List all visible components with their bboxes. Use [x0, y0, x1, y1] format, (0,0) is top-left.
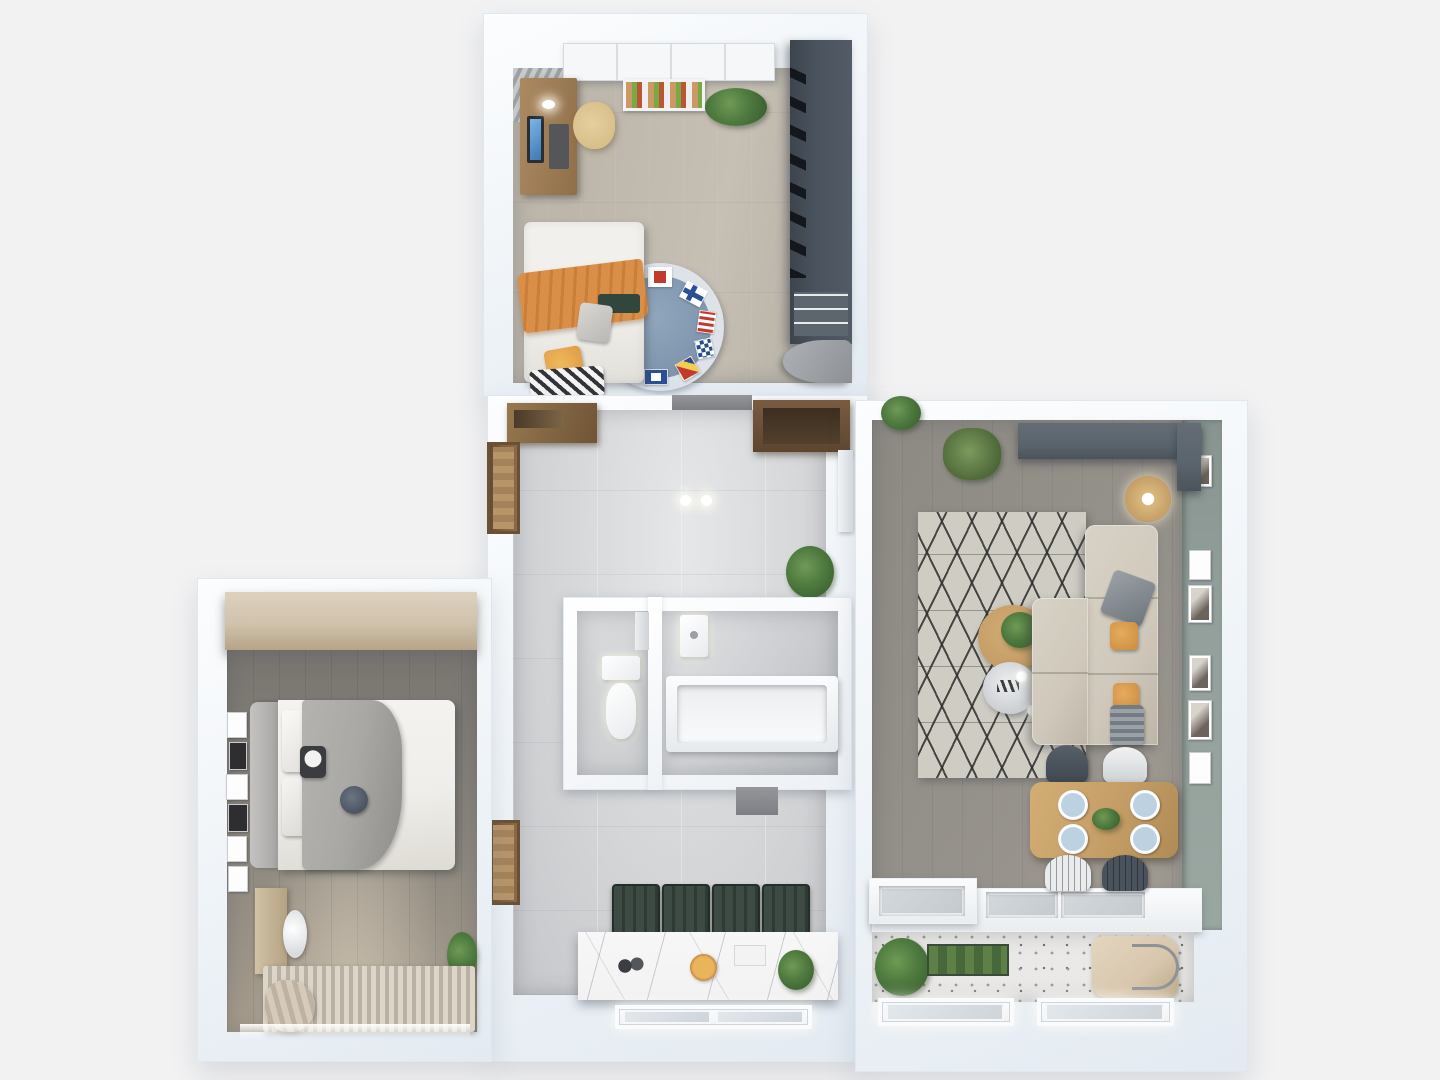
bedroom-chair	[283, 910, 307, 958]
flag-red-square	[648, 267, 672, 287]
wall-dispenser	[635, 612, 649, 650]
kids-single-bed	[524, 222, 644, 383]
bar-stool-2	[662, 884, 710, 938]
bathroom-sink	[680, 615, 708, 657]
hallway-kitchen-block	[487, 395, 868, 1062]
plate-2	[1130, 790, 1160, 820]
gray-pillow	[576, 302, 614, 343]
double-bed	[278, 700, 455, 870]
dining-table	[1030, 782, 1178, 858]
bar-stool-4	[762, 884, 810, 938]
bathtub-basin	[677, 685, 827, 743]
desk-lamp	[542, 100, 555, 109]
plate-4	[1130, 824, 1160, 854]
master-bedroom	[197, 578, 492, 1062]
flag-stripes	[697, 310, 717, 334]
planter-box	[927, 944, 1009, 976]
plate-3	[1058, 824, 1088, 854]
bedroom-window-light	[240, 1024, 470, 1040]
table-plant	[1092, 808, 1120, 830]
gray-throw-blanket	[302, 700, 402, 870]
side-table-items	[997, 680, 1019, 692]
desk	[520, 78, 577, 195]
rattan-floor-lamp	[1125, 476, 1171, 522]
monitor-screen	[530, 119, 541, 160]
ceiling-light-1	[680, 495, 691, 506]
bathroom-block	[563, 597, 852, 790]
bathtub	[666, 676, 838, 752]
ceiling-light-2	[701, 495, 712, 506]
flag-blue	[644, 369, 668, 385]
living-dining-block	[855, 400, 1248, 1072]
kids-room-door-threshold	[672, 395, 752, 410]
book-shelf	[623, 79, 705, 111]
entry-door	[487, 442, 520, 534]
hall-brown-wardrobe	[753, 400, 850, 452]
wardrobe-drawers	[794, 292, 848, 336]
island-plant	[778, 950, 814, 990]
flag-checkered	[694, 337, 715, 359]
counter-sink	[879, 886, 965, 916]
sofa-striped-pillow	[1110, 705, 1144, 745]
wall-plant	[881, 396, 921, 430]
bar-stool-1	[612, 884, 660, 938]
hall-white-cabinet	[838, 450, 853, 532]
monitor	[527, 116, 544, 163]
kitchen-window	[615, 1005, 812, 1029]
balcony-window-1	[878, 998, 1014, 1026]
wall-frame-3	[226, 774, 248, 800]
kitchen-window-pane-2	[716, 1010, 804, 1024]
tote-bag	[1092, 936, 1178, 998]
hallway-plant	[786, 546, 834, 598]
bed-headboard	[250, 702, 278, 868]
counter-sink-unit	[869, 878, 977, 924]
dark-open-wardrobe	[790, 40, 852, 344]
pizza	[690, 954, 717, 981]
marble-island	[578, 932, 838, 1000]
bathroom-divider-wall	[648, 597, 662, 790]
bottles	[616, 956, 646, 976]
panda-pillow	[300, 746, 326, 778]
media-cabinet-return	[1177, 423, 1201, 491]
kitchen-window-pane-1	[623, 1010, 711, 1024]
bag-handle	[1132, 944, 1179, 990]
sage-green-wall	[1182, 420, 1222, 930]
cooktop-recess-1	[986, 892, 1058, 918]
wood-sideboard	[507, 403, 597, 443]
kids-room-plant	[705, 88, 767, 126]
grass-plant	[943, 428, 1001, 480]
wall-frame-4	[228, 804, 248, 832]
cooktop-recess-2	[1061, 892, 1145, 918]
toilet-bowl	[606, 683, 636, 739]
herb-plant	[875, 938, 929, 996]
toilet-tank	[602, 656, 640, 680]
entry-door-leaf	[493, 447, 514, 529]
corner-sofa-chaise	[1032, 598, 1088, 745]
wall-frame-6	[228, 866, 248, 892]
bedroom-door-leaf	[493, 825, 514, 900]
tan-desk-chair	[573, 102, 615, 149]
kids-bedroom	[483, 13, 868, 397]
dining-chair-white-1	[1103, 747, 1147, 783]
media-cabinet	[1018, 423, 1201, 459]
serving-tray	[734, 945, 766, 966]
wall-frame-2	[229, 742, 247, 770]
sofa-orange-pillow-1	[1110, 622, 1138, 650]
chandelier-bulb	[1015, 670, 1028, 683]
desk-pad	[549, 124, 569, 169]
sliding-door-closet	[563, 43, 775, 81]
bar-stool-3	[712, 884, 760, 938]
hanging-clothes	[790, 58, 806, 278]
wardrobe-beam	[225, 592, 477, 650]
wall-frame-5	[227, 836, 247, 862]
floor-plan-render: Top-down 3D architectural render of a tw…	[0, 0, 1440, 1080]
dining-chair-dark-2	[1102, 855, 1148, 891]
dining-chair-dark-1	[1046, 745, 1088, 783]
dining-chair-white-2	[1045, 855, 1091, 891]
plate-1	[1058, 790, 1088, 820]
round-pillow	[340, 786, 368, 814]
bathroom-door-mat	[736, 787, 778, 815]
wall-frame-1	[227, 712, 247, 738]
balcony-window-2	[1037, 998, 1174, 1026]
